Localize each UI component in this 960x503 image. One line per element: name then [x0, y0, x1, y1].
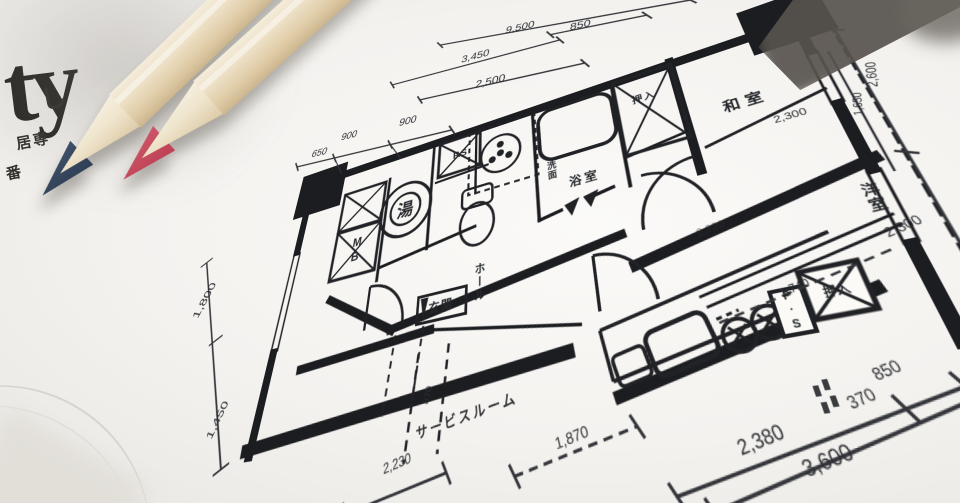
dim-2600: 2,600: [862, 61, 881, 87]
photo-of-floor-plan: ty し 居専 番: [0, 0, 960, 503]
room-label-senmen: 洗面: [545, 159, 560, 182]
dim-1650: 1,650: [849, 92, 866, 116]
room-label-hall: ホール: [469, 261, 486, 305]
text-fragment: 番: [4, 161, 23, 184]
